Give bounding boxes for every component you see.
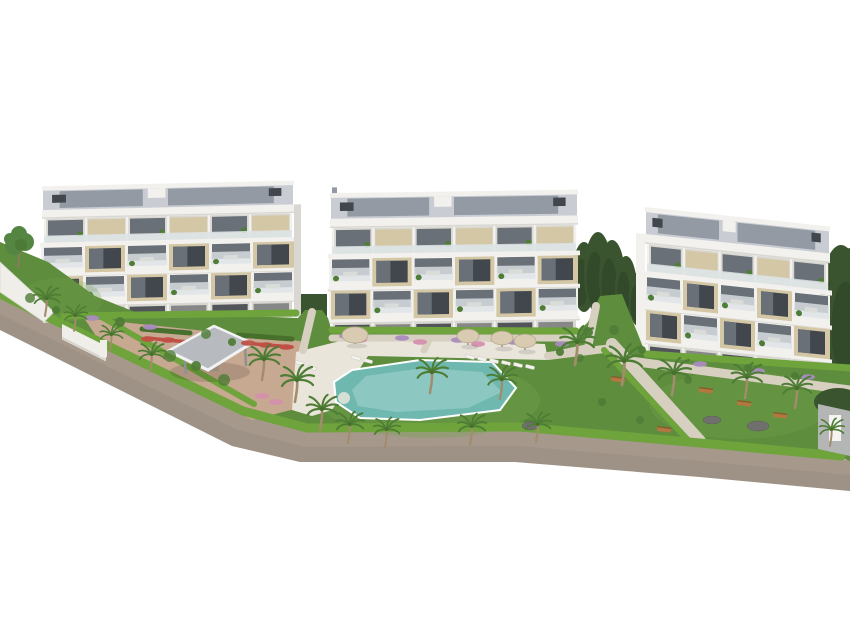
flower-bed-pink bbox=[255, 393, 269, 399]
rock bbox=[703, 416, 721, 424]
solar-panel-array bbox=[168, 186, 274, 205]
solar-panel-array bbox=[347, 197, 429, 216]
shrub bbox=[556, 348, 564, 356]
roof-skylight bbox=[340, 202, 354, 211]
attic-wall-panel bbox=[252, 215, 289, 232]
balcony-slab bbox=[454, 311, 495, 315]
attic-wall-panel bbox=[456, 228, 492, 246]
shrub bbox=[636, 416, 644, 424]
attic-wall-panel bbox=[537, 227, 573, 245]
balcony-slab bbox=[495, 279, 536, 283]
flower-bed-pink bbox=[413, 339, 427, 345]
building-center bbox=[328, 184, 580, 340]
flower-bed-purple bbox=[85, 315, 99, 321]
roof-skylight bbox=[553, 197, 565, 206]
flower-bed-pink bbox=[269, 399, 283, 405]
shrub bbox=[191, 361, 201, 371]
shrub bbox=[218, 374, 230, 386]
roof-skylight bbox=[52, 195, 66, 203]
attic-wall-panel bbox=[88, 219, 125, 236]
shrub bbox=[228, 338, 236, 346]
flower-bed-purple bbox=[395, 335, 409, 341]
roof-bulkhead bbox=[723, 220, 736, 232]
flower-bed-red bbox=[241, 340, 255, 346]
architectural-rendering bbox=[0, 0, 850, 620]
balcony-slab bbox=[413, 280, 454, 284]
balcony-slab bbox=[330, 281, 371, 285]
hedge-center-building-base bbox=[332, 330, 576, 331]
rock bbox=[747, 421, 769, 431]
roof-bulkhead bbox=[148, 188, 166, 198]
shrub bbox=[52, 306, 60, 314]
flower-bed-red bbox=[279, 344, 293, 350]
flower-bed-red bbox=[141, 336, 155, 342]
shrub bbox=[609, 325, 619, 335]
solar-panel-array bbox=[60, 189, 143, 208]
shrub bbox=[201, 329, 211, 339]
flower-bed-red bbox=[161, 337, 175, 343]
roof-skylight bbox=[269, 188, 282, 196]
roof-skylight bbox=[652, 218, 662, 228]
balcony-slab bbox=[537, 310, 578, 314]
building-end-wall bbox=[294, 204, 301, 317]
flower-bed-red bbox=[259, 342, 273, 348]
attic-wall-panel bbox=[375, 229, 411, 247]
solar-panel-array bbox=[454, 196, 558, 216]
roof-bulkhead bbox=[434, 196, 451, 207]
pool-steps bbox=[338, 392, 350, 404]
balcony-slab bbox=[371, 313, 412, 317]
flower-bed-purple bbox=[693, 361, 707, 367]
attic-wall-panel bbox=[170, 217, 207, 234]
shrub bbox=[598, 398, 606, 406]
roof-skylight bbox=[812, 232, 821, 242]
flower-bed-purple bbox=[143, 324, 157, 330]
gate-pillar bbox=[100, 340, 107, 357]
rendering-canvas bbox=[0, 0, 850, 620]
